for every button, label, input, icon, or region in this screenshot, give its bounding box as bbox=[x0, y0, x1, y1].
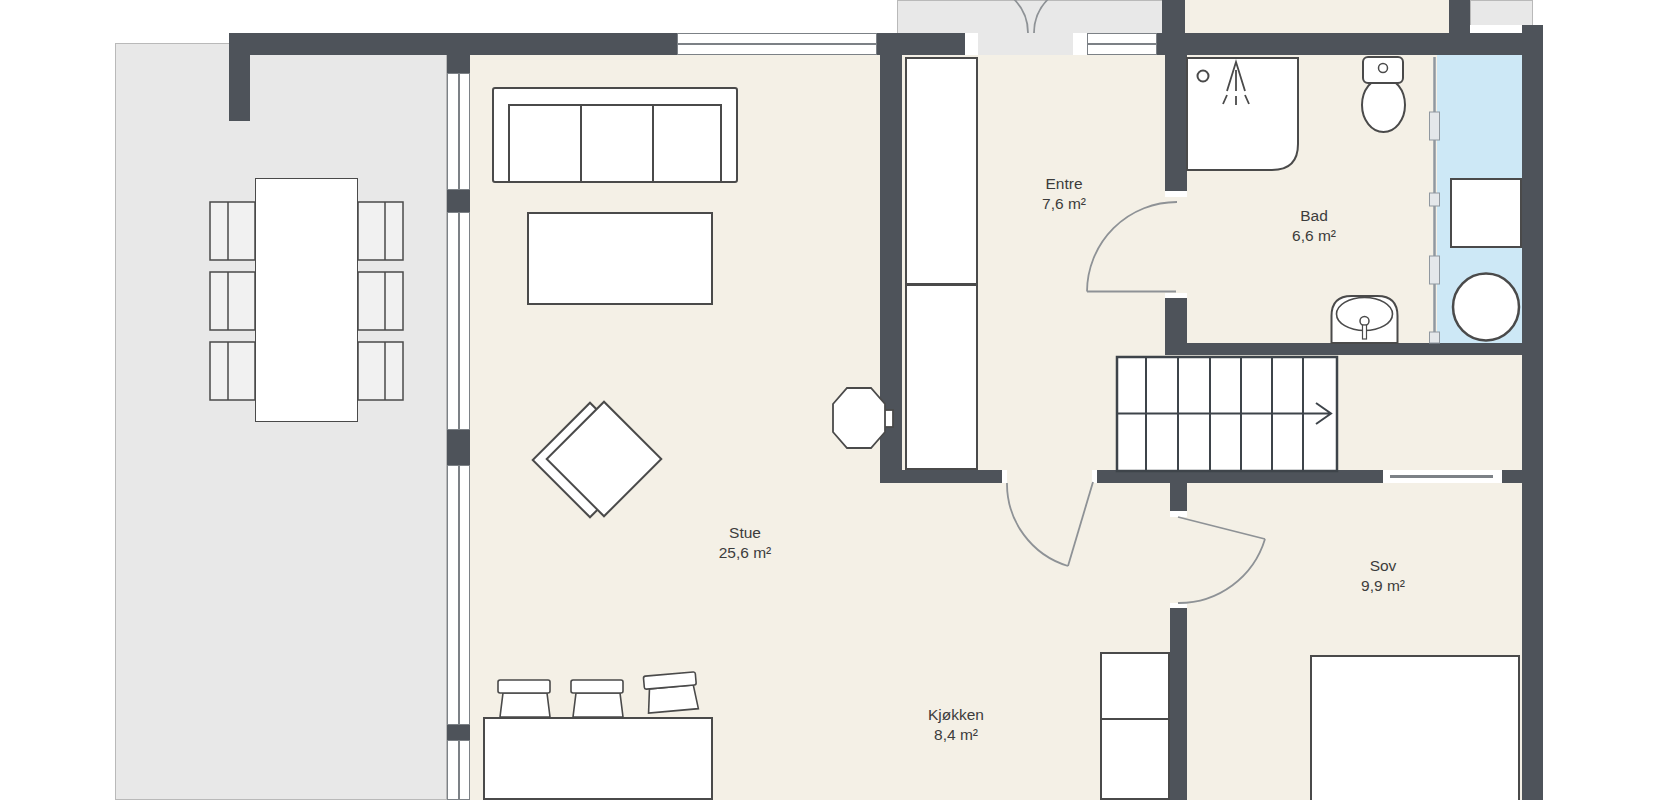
room-area: 9,9 m² bbox=[1361, 576, 1405, 596]
room-name: Bad bbox=[1292, 206, 1336, 226]
room-area: 25,6 m² bbox=[719, 543, 772, 563]
glass-partition bbox=[1430, 57, 1440, 343]
room-name: Sov bbox=[1361, 556, 1405, 576]
dining-chairs bbox=[210, 202, 403, 400]
sov-door-swing bbox=[1178, 517, 1265, 603]
washing-machine-round bbox=[1453, 274, 1519, 341]
staircase bbox=[1117, 357, 1337, 471]
room-label-kjokken: Kjøkken 8,4 m² bbox=[928, 705, 984, 745]
bad-door-swing bbox=[1087, 202, 1177, 292]
stool bbox=[833, 388, 893, 448]
kitchen-chairs bbox=[498, 672, 698, 717]
room-label-stue: Stue 25,6 m² bbox=[719, 523, 772, 563]
shower bbox=[1187, 58, 1298, 170]
floor-plan: Stue 25,6 m² Entre 7,6 m² Bad 6,6 m² Sov… bbox=[0, 0, 1670, 800]
room-name: Kjøkken bbox=[928, 705, 984, 725]
armchair bbox=[533, 402, 662, 518]
room-label-bad: Bad 6,6 m² bbox=[1292, 206, 1336, 246]
room-label-sov: Sov 9,9 m² bbox=[1361, 556, 1405, 596]
room-name: Entre bbox=[1042, 174, 1086, 194]
kitchen-door-swing bbox=[1007, 482, 1093, 566]
room-label-entre: Entre 7,6 m² bbox=[1042, 174, 1086, 214]
room-area: 8,4 m² bbox=[928, 725, 984, 745]
room-area: 6,6 m² bbox=[1292, 226, 1336, 246]
fixtures-overlay bbox=[0, 0, 1670, 800]
room-name: Stue bbox=[719, 523, 772, 543]
bathroom-sink bbox=[1332, 296, 1398, 343]
entry-double-door bbox=[980, 0, 1082, 33]
toilet bbox=[1362, 57, 1405, 132]
room-area: 7,6 m² bbox=[1042, 194, 1086, 214]
